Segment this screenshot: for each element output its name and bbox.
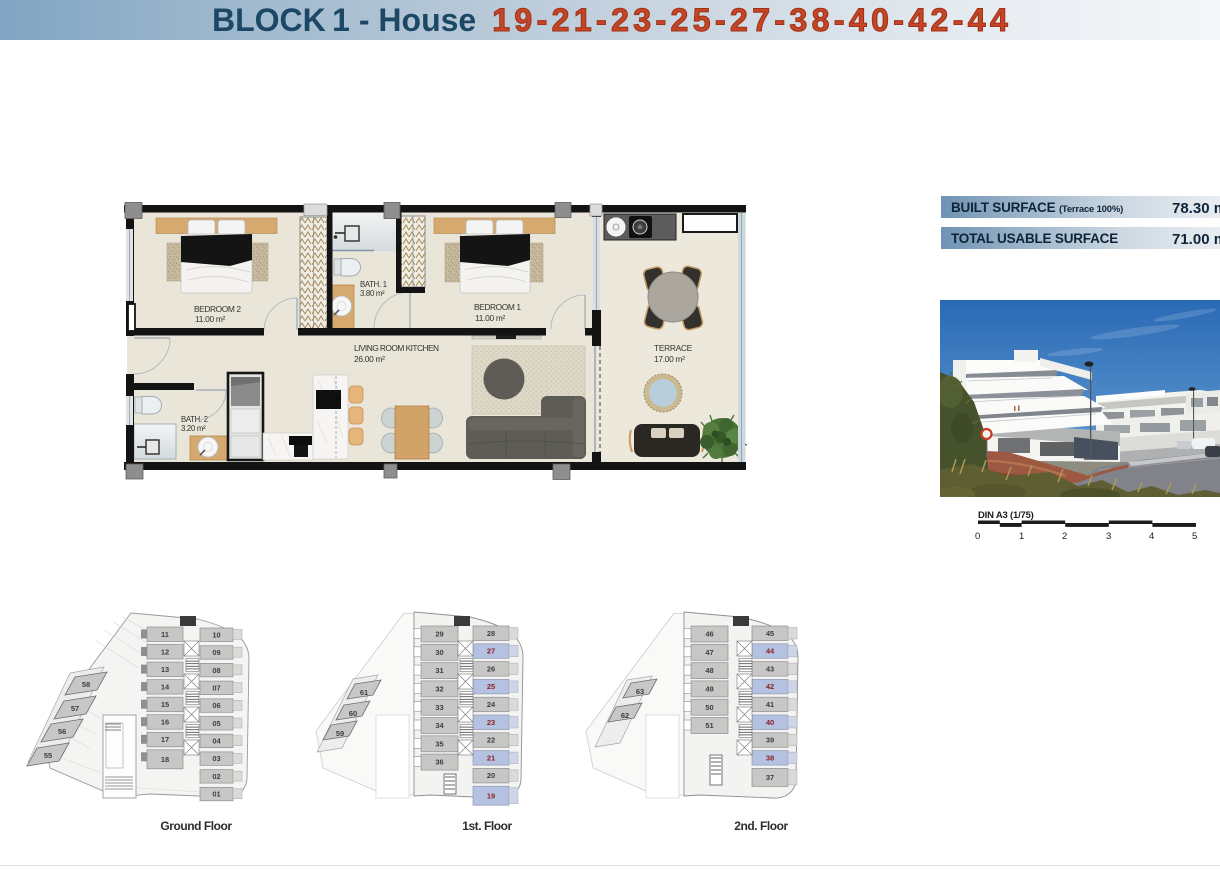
svg-text:20: 20 (487, 771, 495, 780)
svg-text:Ground Floor: Ground Floor (160, 819, 232, 833)
svg-text:50: 50 (705, 703, 713, 712)
svg-text:02: 02 (212, 772, 220, 781)
svg-text:29: 29 (435, 630, 443, 639)
svg-text:17.00 m²: 17.00 m² (654, 354, 685, 364)
svg-text:27: 27 (487, 647, 495, 656)
svg-text:58: 58 (82, 680, 90, 689)
svg-text:5: 5 (1192, 531, 1197, 542)
svg-text:09: 09 (212, 648, 220, 657)
svg-text:38: 38 (766, 754, 774, 763)
svg-text:56: 56 (58, 727, 66, 736)
svg-text:26.00 m²: 26.00 m² (354, 354, 385, 364)
svg-text:39: 39 (766, 736, 774, 745)
svg-text:31: 31 (435, 666, 443, 675)
svg-text:62: 62 (621, 711, 629, 720)
svg-text:12: 12 (161, 647, 169, 656)
svg-text:33: 33 (435, 703, 443, 712)
svg-text:59: 59 (336, 729, 344, 738)
svg-text:41: 41 (766, 700, 774, 709)
svg-text:48: 48 (705, 666, 713, 675)
svg-text:BEDROOM 2: BEDROOM 2 (194, 304, 241, 314)
svg-text:11.00 m²: 11.00 m² (475, 313, 506, 323)
svg-text:45: 45 (766, 629, 774, 638)
svg-text:44: 44 (766, 647, 775, 656)
svg-text:11.00 m²: 11.00 m² (195, 314, 226, 324)
svg-text:1st. Floor: 1st. Floor (462, 819, 512, 833)
svg-text:3: 3 (1106, 531, 1111, 542)
svg-text:BATH. 1: BATH. 1 (360, 280, 387, 289)
svg-text:61: 61 (360, 688, 368, 697)
svg-text:37: 37 (766, 773, 774, 782)
svg-text:2nd. Floor: 2nd. Floor (734, 819, 788, 833)
svg-text:4: 4 (1149, 531, 1154, 542)
svg-text:3.80 m²: 3.80 m² (360, 289, 385, 298)
svg-text:0: 0 (975, 531, 980, 542)
svg-text:19: 19 (487, 791, 495, 800)
svg-text:60: 60 (349, 709, 357, 718)
svg-text:42: 42 (766, 682, 774, 691)
svg-text:11: 11 (161, 630, 169, 639)
svg-text:10: 10 (212, 630, 220, 639)
svg-text:07: 07 (212, 684, 220, 693)
svg-text:24: 24 (487, 700, 496, 709)
svg-text:28: 28 (487, 629, 495, 638)
svg-text:25: 25 (487, 682, 495, 691)
svg-text:34: 34 (435, 721, 444, 730)
svg-text:32: 32 (435, 685, 443, 694)
svg-text:BATH. 2: BATH. 2 (181, 415, 208, 424)
svg-text:15: 15 (161, 700, 169, 709)
svg-text:21: 21 (487, 754, 495, 763)
svg-text:14: 14 (161, 683, 170, 692)
svg-text:LIVING ROOM KITCHEN: LIVING ROOM KITCHEN (354, 343, 439, 353)
svg-text:57: 57 (71, 704, 79, 713)
svg-text:06: 06 (212, 701, 220, 710)
svg-text:2: 2 (1062, 531, 1067, 542)
svg-text:51: 51 (705, 721, 713, 730)
svg-text:18: 18 (161, 755, 169, 764)
svg-text:36: 36 (435, 758, 443, 767)
svg-text:43: 43 (766, 665, 774, 674)
svg-text:1: 1 (1019, 531, 1024, 542)
svg-text:BEDROOM 1: BEDROOM 1 (474, 302, 521, 312)
svg-text:17: 17 (161, 735, 169, 744)
svg-text:47: 47 (705, 648, 713, 657)
svg-text:35: 35 (435, 739, 443, 748)
svg-text:40: 40 (766, 718, 774, 727)
svg-text:01: 01 (212, 790, 220, 799)
svg-text:05: 05 (212, 719, 220, 728)
svg-text:3.20 m²: 3.20 m² (181, 424, 206, 433)
svg-text:22: 22 (487, 736, 495, 745)
svg-text:46: 46 (705, 630, 713, 639)
svg-text:03: 03 (212, 754, 220, 763)
svg-text:13: 13 (161, 665, 169, 674)
svg-text:63: 63 (636, 687, 644, 696)
svg-text:49: 49 (705, 685, 713, 694)
svg-text:16: 16 (161, 718, 169, 727)
svg-text:08: 08 (212, 666, 220, 675)
svg-text:23: 23 (487, 718, 495, 727)
svg-text:55: 55 (44, 751, 52, 760)
svg-text:04: 04 (212, 737, 221, 746)
svg-text:DIN A3 (1/75): DIN A3 (1/75) (978, 510, 1034, 521)
svg-text:26: 26 (487, 665, 495, 674)
svg-text:30: 30 (435, 648, 443, 657)
svg-text:TERRACE: TERRACE (654, 343, 693, 353)
